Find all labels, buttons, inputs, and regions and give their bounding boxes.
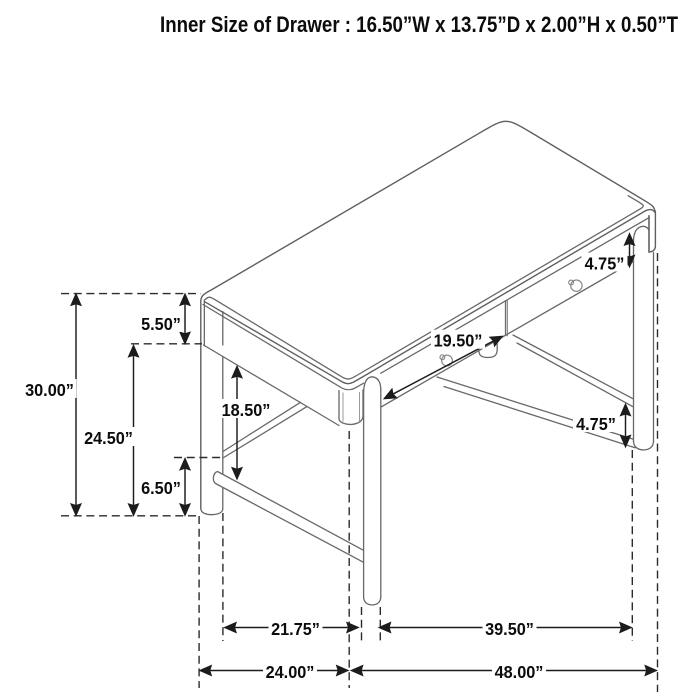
svg-text:39.50”: 39.50” <box>485 619 534 639</box>
svg-text:21.75”: 21.75” <box>271 619 320 639</box>
svg-text:24.00”: 24.00” <box>266 662 315 682</box>
svg-text:4.75”: 4.75” <box>576 414 616 434</box>
svg-text:4.75”: 4.75” <box>585 254 625 274</box>
svg-text:30.00”: 30.00” <box>25 380 74 400</box>
svg-text:6.50”: 6.50” <box>141 478 181 498</box>
svg-text:24.50”: 24.50” <box>84 428 133 448</box>
svg-text:18.50”: 18.50” <box>222 400 271 420</box>
svg-text:48.00”: 48.00” <box>495 662 544 682</box>
svg-text:5.50”: 5.50” <box>141 314 181 334</box>
svg-text:19.50”: 19.50” <box>434 331 483 351</box>
